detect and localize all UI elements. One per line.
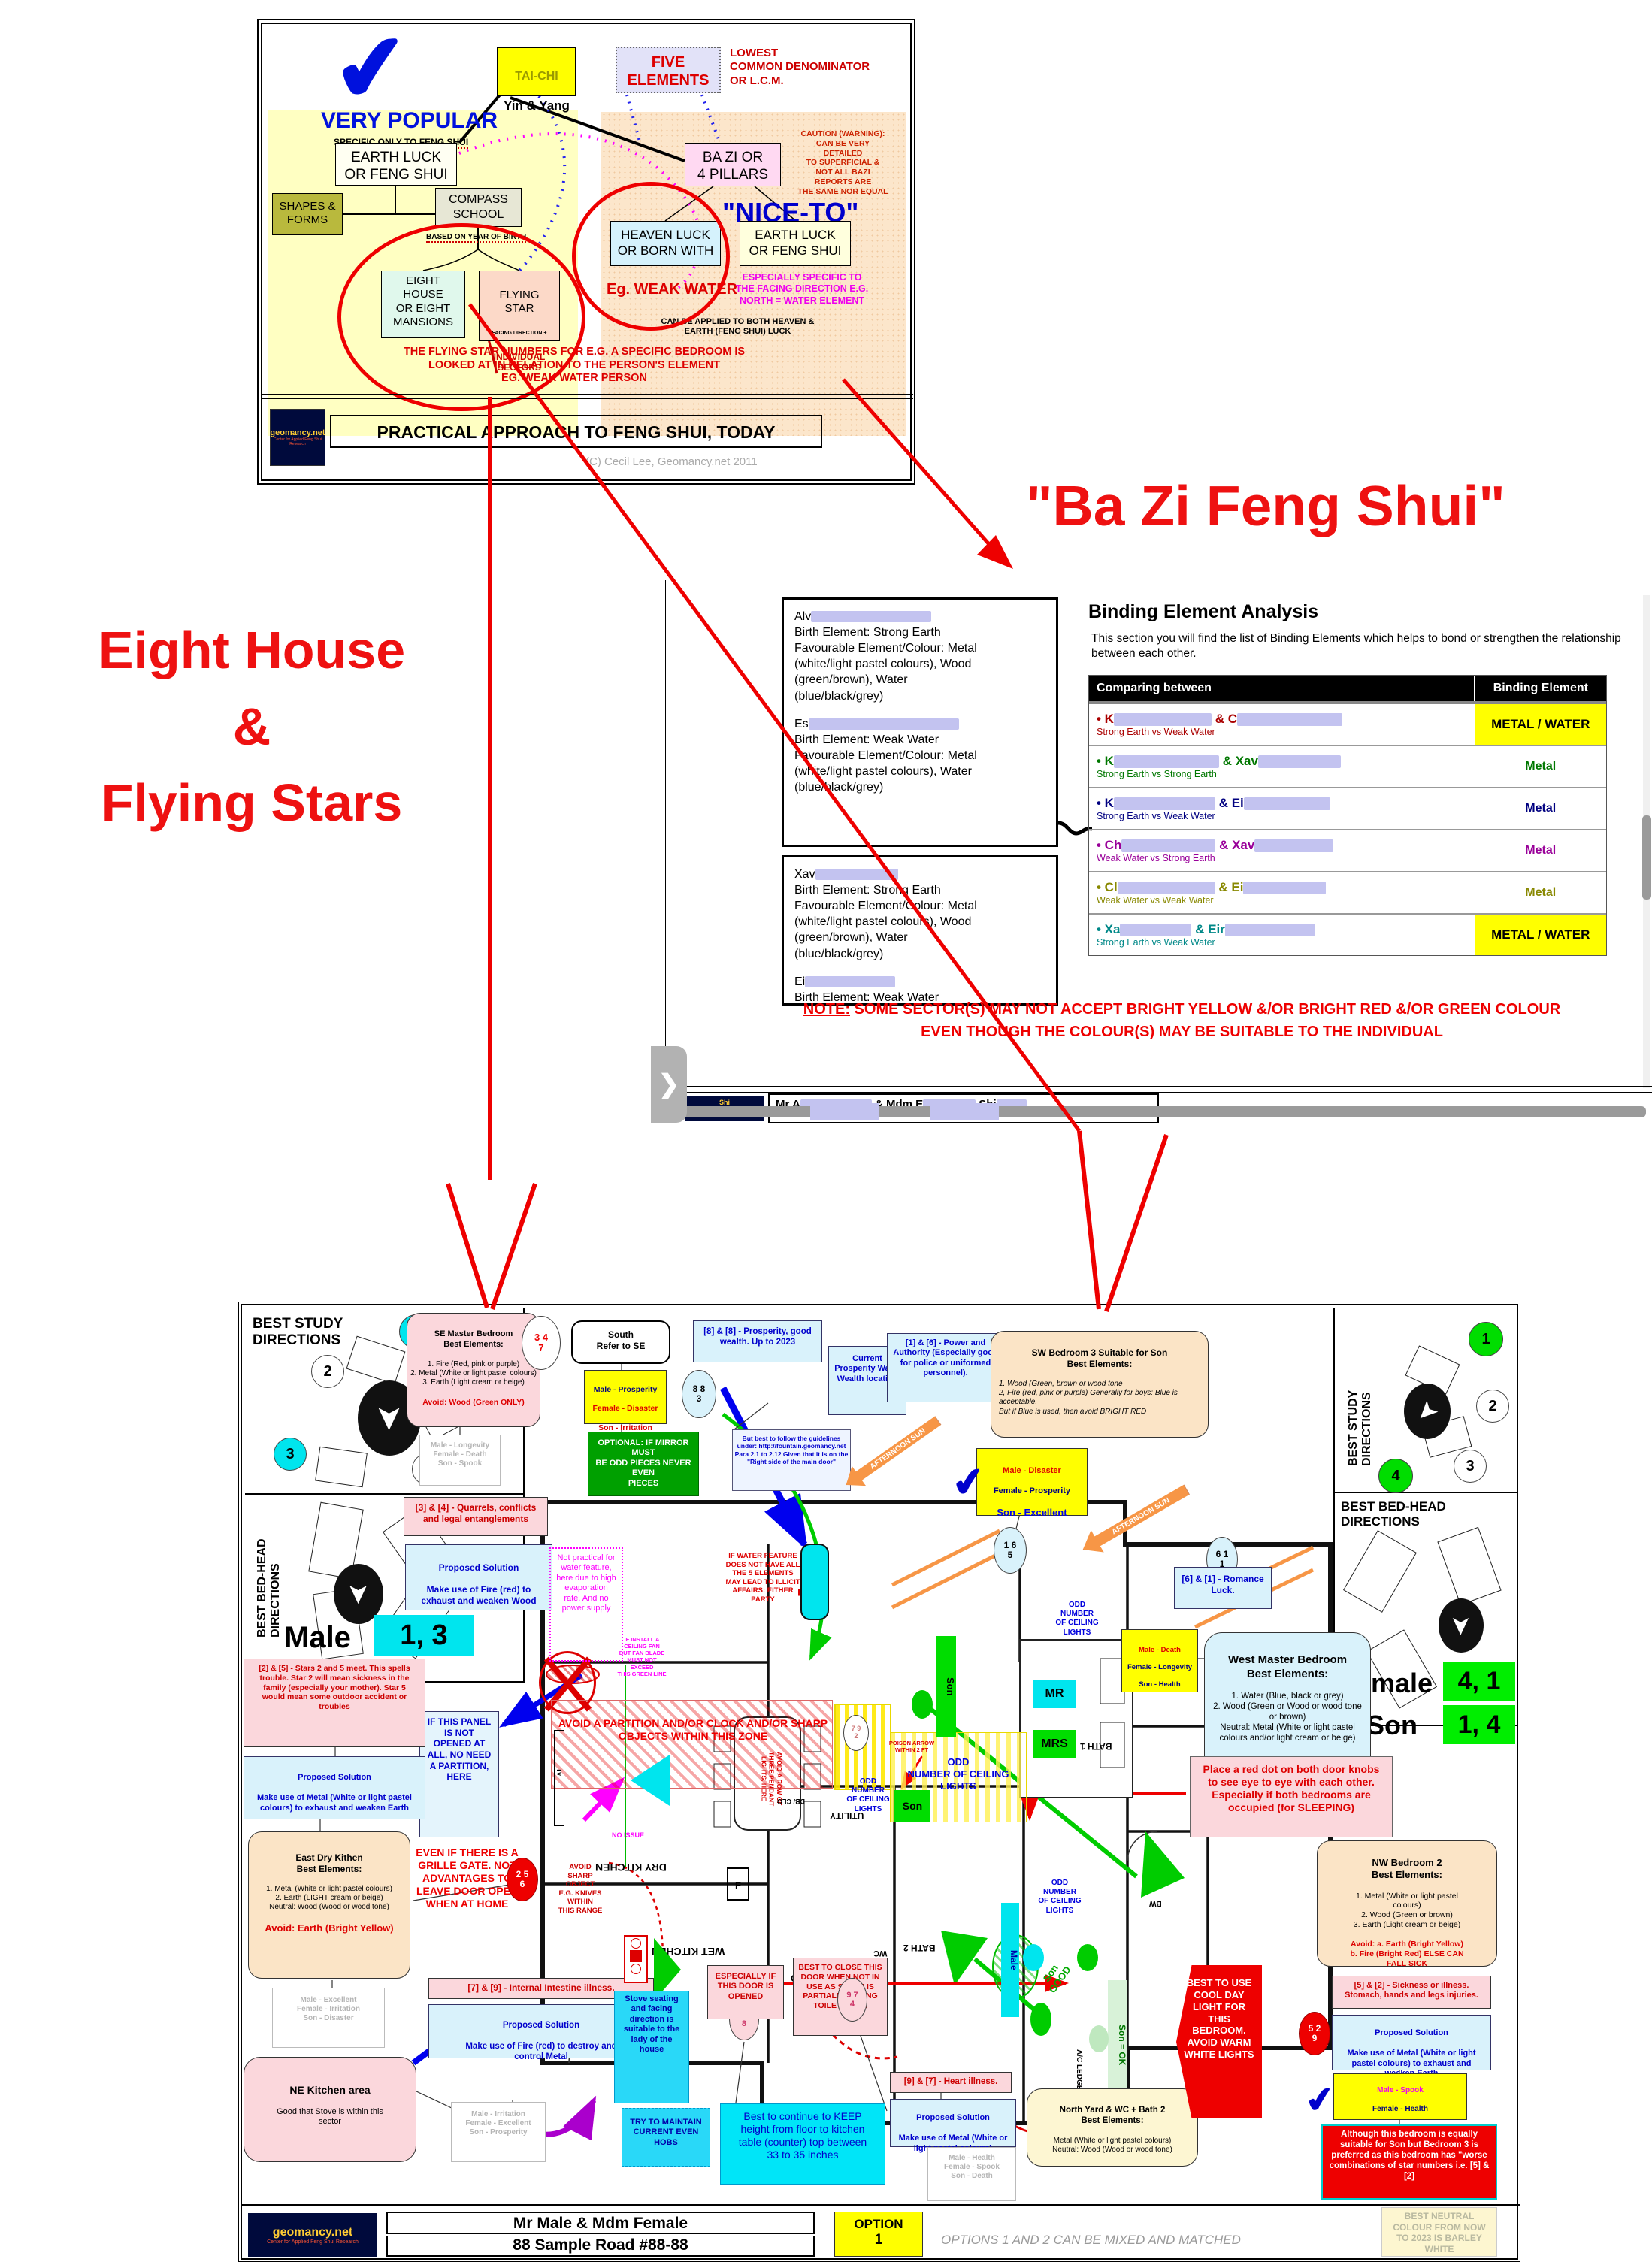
panel-bottom-line2: [655, 1092, 1652, 1093]
pair-sub: Strong Earth vs Strong Earth: [1097, 769, 1467, 779]
stars-25-box: [2] & [5] - Stars 2 and 5 meet. This spe…: [244, 1659, 425, 1747]
eight-house-heading: Eight House & Flying Stars: [23, 612, 481, 842]
heading-line1: Eight House: [23, 612, 481, 689]
fridge-label: F: [727, 1867, 749, 1901]
panel-left-border1: [655, 580, 655, 1088]
col-binding: Binding Element: [1475, 676, 1606, 701]
ba-zi-box: BA ZI OR 4 PILLARS: [685, 143, 781, 186]
table-row: • Xa & Eir Strong Earth vs Weak Water ME…: [1089, 913, 1606, 955]
pair-a: • Ch: [1097, 838, 1121, 852]
name-prefix: Es: [794, 718, 809, 730]
logo-text: geomancy.net: [273, 2226, 352, 2239]
binding-value: METAL / WATER: [1475, 915, 1607, 955]
lcd-label: LOWEST COMMON DENOMINATOR OR L.C.M.: [730, 47, 888, 88]
north-title: North Yard & WC + Bath 2 Best Elements:: [1027, 2105, 1197, 2126]
binding-intro: This section you will find the list of B…: [1091, 631, 1652, 661]
solution-metal2-box: Proposed Solution Make use of Metal (Whi…: [890, 2099, 1016, 2147]
diagram-footer-separator: [262, 394, 913, 395]
nw-body: 1. Metal (White or light pastel colours)…: [1318, 1892, 1496, 1930]
option-label: OPTION: [835, 2217, 922, 2232]
west-title: West Master Bedroom Best Elements:: [1205, 1653, 1370, 1681]
table-row: • K & Ei Strong Earth vs Weak Water Meta…: [1089, 787, 1606, 829]
star-circle-34-7: 3 4 7: [522, 1316, 561, 1370]
se-luck-box: Male - Longevity Female - Death Son - Sp…: [419, 1435, 501, 1486]
luck-male: Male - Prosperity: [585, 1385, 666, 1395]
solution-title: Proposed Solution: [891, 2113, 1015, 2123]
even-hobs-box: TRY TO MAINTAIN CURRENT EVEN HOBS: [622, 2108, 710, 2167]
shapes-forms-box: SHAPES & FORMS: [272, 193, 343, 235]
east-title: East Dry Kithen Best Elements:: [249, 1852, 410, 1874]
star-circle-79-2: 7 9 2: [843, 1715, 869, 1751]
star-circle-88-3: 8 8 3: [682, 1370, 716, 1418]
panel-partition-note: IF THIS PANEL IS NOT OPENED AT ALL, NO N…: [419, 1711, 499, 1837]
direction-number-4: 4: [1378, 1459, 1413, 1493]
wardrobe-label: BW: [1149, 1899, 1162, 1907]
pair-a: • Xa: [1097, 922, 1120, 936]
south-luck-box: Male - Prosperity Female - Disaster Son …: [584, 1370, 667, 1424]
mr-tag: MR: [1033, 1680, 1076, 1708]
no-issue-note: NO ISSUE: [612, 1831, 644, 1839]
red-circle-eight-house: [337, 223, 585, 411]
check-icon: ✔: [949, 1458, 988, 1507]
solution-title: Proposed Solution: [406, 1562, 552, 1574]
grille-gate-note: EVEN IF THERE IS A GRILLE GATE. NOT ADVA…: [409, 1846, 525, 1959]
pair-b: & C: [1215, 712, 1237, 726]
pair-sub: Strong Earth vs Weak Water: [1097, 727, 1467, 737]
compass-school-box: COMPASS SCHOOL: [435, 188, 522, 227]
table-row: • K & C Strong Earth vs Weak Water METAL…: [1089, 701, 1606, 745]
pair-b: & Ei: [1219, 796, 1244, 810]
desk-doodle: [315, 1447, 368, 1487]
binding-value: Metal: [1475, 788, 1607, 829]
pair-b: & Eir: [1195, 922, 1225, 936]
power-authority-box: [1] & [6] - Power and Authority (Especia…: [887, 1333, 1004, 1402]
partition-warning-label: AVOID A PARTITION AND/OR CLOCK AND/OR SH…: [554, 1717, 832, 1743]
keep-height-box: Best to continue to KEEP height from flo…: [720, 2103, 885, 2185]
logo-subtext: Center for Applied Feng Shui Research: [267, 2239, 359, 2245]
son-tag: Son: [894, 1790, 930, 1822]
nw-title: NW Bedroom 2 Best Elements:: [1318, 1857, 1496, 1881]
bedhead-title: BEST BED-HEAD DIRECTIONS: [256, 1502, 283, 1638]
light-circle-green: [912, 1690, 933, 1719]
odd-lights-label: ODD NUMBER OF CEILING LIGHTS: [1033, 1879, 1086, 1934]
red-circle-heaven-luck: [572, 182, 730, 331]
solution-wood-box: Proposed Solution Make use of Fire (red)…: [405, 1544, 552, 1610]
nw-avoid: Avoid: a. Earth (Bright Yellow) b. Fire …: [1318, 1940, 1496, 1968]
avoid-sharp-label: AVOID SHARP OBJECT E.G. KNIVES WITHIN TH…: [550, 1863, 610, 1952]
guidelines-box: But best to follow the guidelines under:…: [732, 1429, 851, 1491]
room-label-db-clo: DB/ CLO: [777, 1798, 805, 1805]
water-feature-warning: IF WATER FEATURE DOES NOT HAVE ALL THE 5…: [725, 1552, 800, 1630]
note-line2: EVEN THOUGH THE COLOUR(S) MAY BE SUITABL…: [714, 1021, 1650, 1043]
redacted-name: [811, 611, 931, 622]
plan-logo: geomancy.net Center for Applied Feng Shu…: [248, 2213, 377, 2257]
light-circle-green: [1030, 2003, 1051, 2036]
binding-value: Metal: [1475, 872, 1607, 913]
sw-title: SW Bedroom 3 Suitable for Son Best Eleme…: [999, 1347, 1200, 1369]
prosperity-88-box: [8] & [8] - Prosperity, good wealth. Up …: [693, 1320, 822, 1362]
solution-body: Make use of Fire (red) to exhaust and we…: [406, 1584, 552, 1606]
stove-unit: [624, 1935, 648, 1983]
luck-son: Son - Excellent: [977, 1507, 1087, 1519]
luck-male: Male - Disaster: [977, 1466, 1087, 1476]
se-body: 1. Fire (Red, pink or purple) 2. Metal (…: [407, 1360, 540, 1388]
female-directions-values: 4, 1: [1443, 1662, 1515, 1701]
odd-lights-label: ODD NUMBER OF CEILING LIGHTS: [1048, 1601, 1106, 1646]
se-title: SE Master Bedroom Best Elements:: [407, 1329, 540, 1350]
solution-body: Make use of Metal (White or light pastel…: [244, 1793, 425, 1813]
redacted-name: [809, 718, 959, 730]
panel-expand-tab[interactable]: ❯: [651, 1046, 687, 1123]
sw-luck-box: Male - Disaster Female - Prosperity Son …: [976, 1448, 1088, 1516]
nw-luck-box: Male - Spook Female - Health Son - Longe…: [1333, 2073, 1467, 2120]
east-kitchen-box: East Dry Kithen Best Elements: 1. Metal …: [248, 1831, 410, 1979]
panel-bottom-line1: [655, 1086, 1652, 1087]
profile-block-1: Alv Birth Element: Strong Earth Favourab…: [782, 597, 1058, 847]
cyan-arrow-shape: [631, 1755, 670, 1806]
sw-body: 1. Wood (Green, brown or wood tone 2, Fi…: [999, 1380, 1200, 1417]
geomancy-logo: geomancy.net Center for Applied Feng Shu…: [270, 409, 325, 466]
ne-luck-box: Male - Irritation Female - Excellent Son…: [451, 2102, 546, 2162]
option-box: OPTION 1: [834, 2212, 923, 2257]
star-circle-16-5: 1 6 5: [994, 1527, 1027, 1574]
luck-male: Male - Spook: [1334, 2086, 1466, 2095]
pair-sub: Weak Water vs Strong Earth: [1097, 853, 1467, 863]
plan-footer-sep1: [242, 2204, 1520, 2206]
direction-number-3: 3: [1454, 1450, 1487, 1483]
redaction-patch: [810, 1103, 879, 1120]
light-circle-cyan: [1023, 1944, 1044, 1971]
direction-number-3: 3: [274, 1438, 307, 1471]
solution-metal3-box: Proposed Solution Make use of Metal (Whi…: [1332, 2015, 1491, 2070]
luck-male: Male - Death: [1122, 1646, 1197, 1655]
room-label-bath1: BATH 1: [1080, 1741, 1112, 1752]
star-circle-97-4: 9 7 4: [837, 1978, 867, 2022]
room-label-wc: WC: [873, 1949, 887, 1958]
light-circle-green: [1077, 1944, 1098, 1971]
pair-sub: Strong Earth vs Weak Water: [1097, 811, 1467, 821]
block-table-connector: [1058, 815, 1092, 845]
note-line1: SOME SECTOR(S) MAY NOT ACCEPT BRIGHT YEL…: [850, 1001, 1560, 1018]
profile-1a-text: Birth Element: Strong Earth Favourable E…: [794, 624, 1045, 704]
star-circle-52-9: 5 2 9: [1299, 2012, 1330, 2055]
tv-unit: TV: [554, 1730, 564, 1826]
profile-1b-text: Birth Element: Weak Water Favourable Ele…: [794, 732, 1045, 795]
client-address-box: 88 Sample Road #88-88: [386, 2236, 815, 2257]
red-dot-advice-box: Place a red dot on both door knobs to se…: [1190, 1756, 1393, 1837]
heading-line3: Flying Stars: [23, 765, 481, 842]
options-mixed-note: OPTIONS 1 AND 2 CAN BE MIXED AND MATCHED: [941, 2233, 1241, 2248]
compass-icon: ➤: [1404, 1384, 1451, 1439]
not-practical-box: Not practical for water feature, here du…: [549, 1547, 623, 1662]
caution-warning-label: CAUTION (WARNING): CAN BE VERY DETAILED …: [781, 129, 905, 197]
south-box: South Refer to SE: [571, 1320, 670, 1364]
best-study-directions-right: BEST STUDY DIRECTIONS 1 2 3 4 ➤: [1333, 1308, 1517, 1493]
panel-vscrollbar-thumb[interactable]: [1642, 815, 1651, 900]
ceiling-fan-note: IF INSTALL A CEILING FAN BUT FAN BLADE M…: [616, 1636, 668, 1680]
table-row: • Cl & Ei Weak Water vs Weak Water Metal: [1089, 871, 1606, 913]
compass-icon: ➤: [1439, 1598, 1484, 1653]
profile-2a-text: Birth Element: Strong Earth Favourable E…: [794, 882, 1045, 962]
binding-value: Metal: [1475, 746, 1607, 787]
room-label-utility: UTILITY: [830, 1810, 864, 1821]
fengshui-overview-diagram: ✔ VERY POPULAR SPECIFIC ONLY TO FENG SHU…: [261, 23, 912, 481]
ne-title: NE Kitchen area: [244, 2084, 416, 2097]
luck-female: Female - Disaster: [585, 1404, 666, 1414]
redacted-name: [805, 976, 895, 987]
option-number: 1: [835, 2232, 922, 2248]
solution-title: Proposed Solution: [1333, 2028, 1490, 2038]
luck-female: Female - Health: [1334, 2105, 1466, 2114]
five-elements-box: FIVE ELEMENTS: [616, 47, 721, 93]
son-directions-values: 1, 4: [1443, 1705, 1515, 1744]
binding-value: METAL / WATER: [1475, 704, 1607, 745]
although-note-box: Although this bedroom is equally suitabl…: [1321, 2124, 1497, 2200]
panel-left-border2: [665, 580, 666, 1088]
light-circle-pale: [1089, 2025, 1109, 2052]
heart-illness-box: [9] & [7] - Heart illness.: [890, 2072, 1012, 2093]
door-opened-box: ESPECIALLY IF THIS DOOR IS OPENED: [707, 1965, 784, 2019]
table-row: • K & Xav Strong Earth vs Strong Earth M…: [1089, 745, 1606, 787]
note-text: NOTE: SOME SECTOR(S) MAY NOT ACCEPT BRIG…: [714, 998, 1650, 1043]
direction-number-2: 2: [311, 1355, 344, 1388]
barley-white-box: BEST NEUTRAL COLOUR FROM NOW TO 2023 IS …: [1381, 2207, 1497, 2257]
solution-metal-box: Proposed Solution Make use of Metal (Whi…: [244, 1756, 425, 1819]
tai-chi-line1: TAI-CHI: [498, 69, 575, 84]
direction-number-2: 2: [1476, 1390, 1509, 1423]
poison-arrow-note: POISON ARROW WITHIN 2 FT: [882, 1740, 941, 1762]
bed-doodle: [1343, 1530, 1417, 1613]
room-label-ac-ledge: A/C LEDGE: [1075, 2049, 1083, 2090]
diagram-title-box: PRACTICAL APPROACH TO FENG SHUI, TODAY: [330, 415, 822, 448]
luck-son: Son - Health: [1122, 1680, 1197, 1689]
east-body: 1. Metal (White or light pastel colours)…: [249, 1885, 410, 1913]
pair-a: • K: [1097, 754, 1114, 768]
pendant-lights-warning: AVOID A ROW OF THREE PENDANT LIGHTS, HER…: [768, 1726, 783, 1831]
stove-seating-box: Stove seating and facing direction is su…: [614, 1991, 689, 2103]
east-luck-box: Male - Excellent Female - Irritation Son…: [272, 1988, 385, 2048]
son-tag-vertical: Son: [936, 1636, 956, 1737]
west-body: 1. Water (Blue, black or grey) 2. Wood (…: [1205, 1691, 1370, 1743]
ne-body: Good that Stove is within this sector: [244, 2107, 416, 2127]
north-body: Metal (White or light pastel colours) Ne…: [1027, 2137, 1197, 2155]
sw-bedroom-box: SW Bedroom 3 Suitable for Son Best Eleme…: [991, 1331, 1209, 1438]
note-label: NOTE:: [803, 1001, 850, 1018]
very-popular-label: VERY POPULAR: [321, 108, 498, 134]
chevron-right-icon: ❯: [658, 1069, 680, 1099]
binding-heading: Binding Element Analysis: [1088, 601, 1318, 623]
pair-b: & Xav: [1223, 754, 1258, 768]
tai-chi-box: TAI-CHI Yin & Yang: [497, 47, 576, 96]
best-study-title: BEST STUDY DIRECTIONS: [1347, 1323, 1374, 1466]
bazi-heading: "Ba Zi Feng Shui": [1026, 473, 1652, 538]
binding-value: Metal: [1475, 830, 1607, 871]
floorplan-page: AVOID A PARTITION AND/OR CLOCK AND/OR SH…: [241, 1304, 1518, 2260]
especially-specific-label: ESPECIALLY SPECIFIC TO THE FACING DIRECT…: [733, 272, 871, 307]
plan-footer-sep2: [242, 2209, 1520, 2209]
cool-light-box: BEST TO USE COOL DAY LIGHT FOR THIS BEDR…: [1176, 1965, 1262, 2118]
pair-b: & Xav: [1219, 838, 1254, 852]
pair-b: & Ei: [1218, 880, 1243, 894]
profile-block-2: Xav Birth Element: Strong Earth Favourab…: [782, 855, 1058, 1006]
odd-lights-label: ODD NUMBER OF CEILING LIGHTS: [840, 1777, 897, 1831]
room-label-bath2: BATH 2: [903, 1943, 935, 1953]
logo-text: geomancy.net: [270, 428, 325, 437]
mirror-box: OPTIONAL: IF MIRROR MUST BE ODD PIECES N…: [588, 1432, 699, 1496]
col-comparing: Comparing between: [1089, 676, 1475, 701]
name-prefix: Alv: [794, 610, 811, 623]
partition-warning-zone: [551, 1700, 833, 1789]
best-study-title: BEST STUDY DIRECTIONS: [253, 1316, 343, 1349]
name-prefix: Ei: [794, 975, 805, 988]
redaction-patch: [930, 1103, 999, 1120]
male-directions-label: Male: [284, 1621, 351, 1655]
west-luck-box: Male - Death Female - Longevity Son - He…: [1121, 1629, 1198, 1692]
bedhead-title: BEST BED-HEAD DIRECTIONS: [1341, 1499, 1446, 1529]
male-tag-vertical: Male: [1001, 1903, 1019, 2017]
north-yard-box: North Yard & WC + Bath 2 Best Elements: …: [1027, 2088, 1198, 2167]
direction-number-1: 1: [1469, 1322, 1503, 1356]
desk-doodle: [346, 1336, 406, 1385]
logo-subtext: Center for Applied Feng Shui Research: [271, 437, 325, 446]
se-bedroom-box: SE Master Bedroom Best Elements: 1. Fire…: [407, 1313, 540, 1427]
redacted-name: [815, 869, 898, 880]
tv-label: TV: [555, 1768, 562, 1776]
son-directions-label: Son: [1366, 1710, 1418, 1741]
tai-chi-line2: Yin & Yang: [498, 98, 575, 114]
luck-female: Female - Longevity: [1122, 1663, 1197, 1672]
se-avoid: Avoid: Wood (Green ONLY): [407, 1398, 540, 1408]
diagram-footer-separator2: [262, 398, 913, 399]
client-name-box: Mr Male & Mdm Female: [386, 2212, 815, 2234]
earth-luck-left-box: EARTH LUCK OR FENG SHUI: [335, 143, 457, 186]
mini-logo-text: Shi: [685, 1099, 764, 1106]
east-avoid: Avoid: Earth (Bright Yellow): [249, 1922, 410, 1934]
binding-table: Comparing between Binding Element • K & …: [1088, 675, 1607, 956]
quarrels-box: [3] & [4] - Quarrels, conflicts and lega…: [404, 1497, 548, 1536]
table-row: • Ch & Xav Weak Water vs Strong Earth Me…: [1089, 829, 1606, 871]
ne-kitchen-box: NE Kitchen area Good that Stove is withi…: [244, 2057, 416, 2162]
earth-luck-right-box: EARTH LUCK OR FENG SHUI: [740, 221, 851, 266]
sickness-box: [5] & [2] - Sickness or illness. Stomach…: [1332, 1976, 1491, 2009]
mrs-tag: MRS: [1033, 1730, 1076, 1758]
male-directions-values: 1, 3: [374, 1615, 474, 1656]
nw-bedroom-box: NW Bedroom 2 Best Elements: 1. Metal (Wh…: [1317, 1840, 1497, 1967]
check-icon: ✔: [1303, 2078, 1337, 2122]
pair-a: • K: [1097, 712, 1114, 726]
solution-title: Proposed Solution: [244, 1773, 425, 1783]
bed-doodle: [1437, 1527, 1501, 1605]
heading-line2: &: [23, 689, 481, 766]
copyright-label: (C) Cecil Lee, Geomancy.net 2011: [585, 455, 758, 468]
name-prefix: Xav: [794, 868, 815, 881]
pair-a: • Cl: [1097, 880, 1118, 894]
north-luck-box: Male - Health Female - Spook Son - Death: [927, 2147, 1016, 2201]
romance-box: [6] & [1] - Romance Luck.: [1174, 1567, 1272, 1609]
luck-female: Female - Prosperity: [977, 1486, 1087, 1496]
pair-sub: Weak Water vs Weak Water: [1097, 895, 1467, 906]
pair-sub: Strong Earth vs Weak Water: [1097, 937, 1467, 948]
pair-a: • K: [1097, 796, 1114, 810]
page: { "icons":{"check":"✔","chevron":"❯","co…: [0, 0, 1652, 2262]
